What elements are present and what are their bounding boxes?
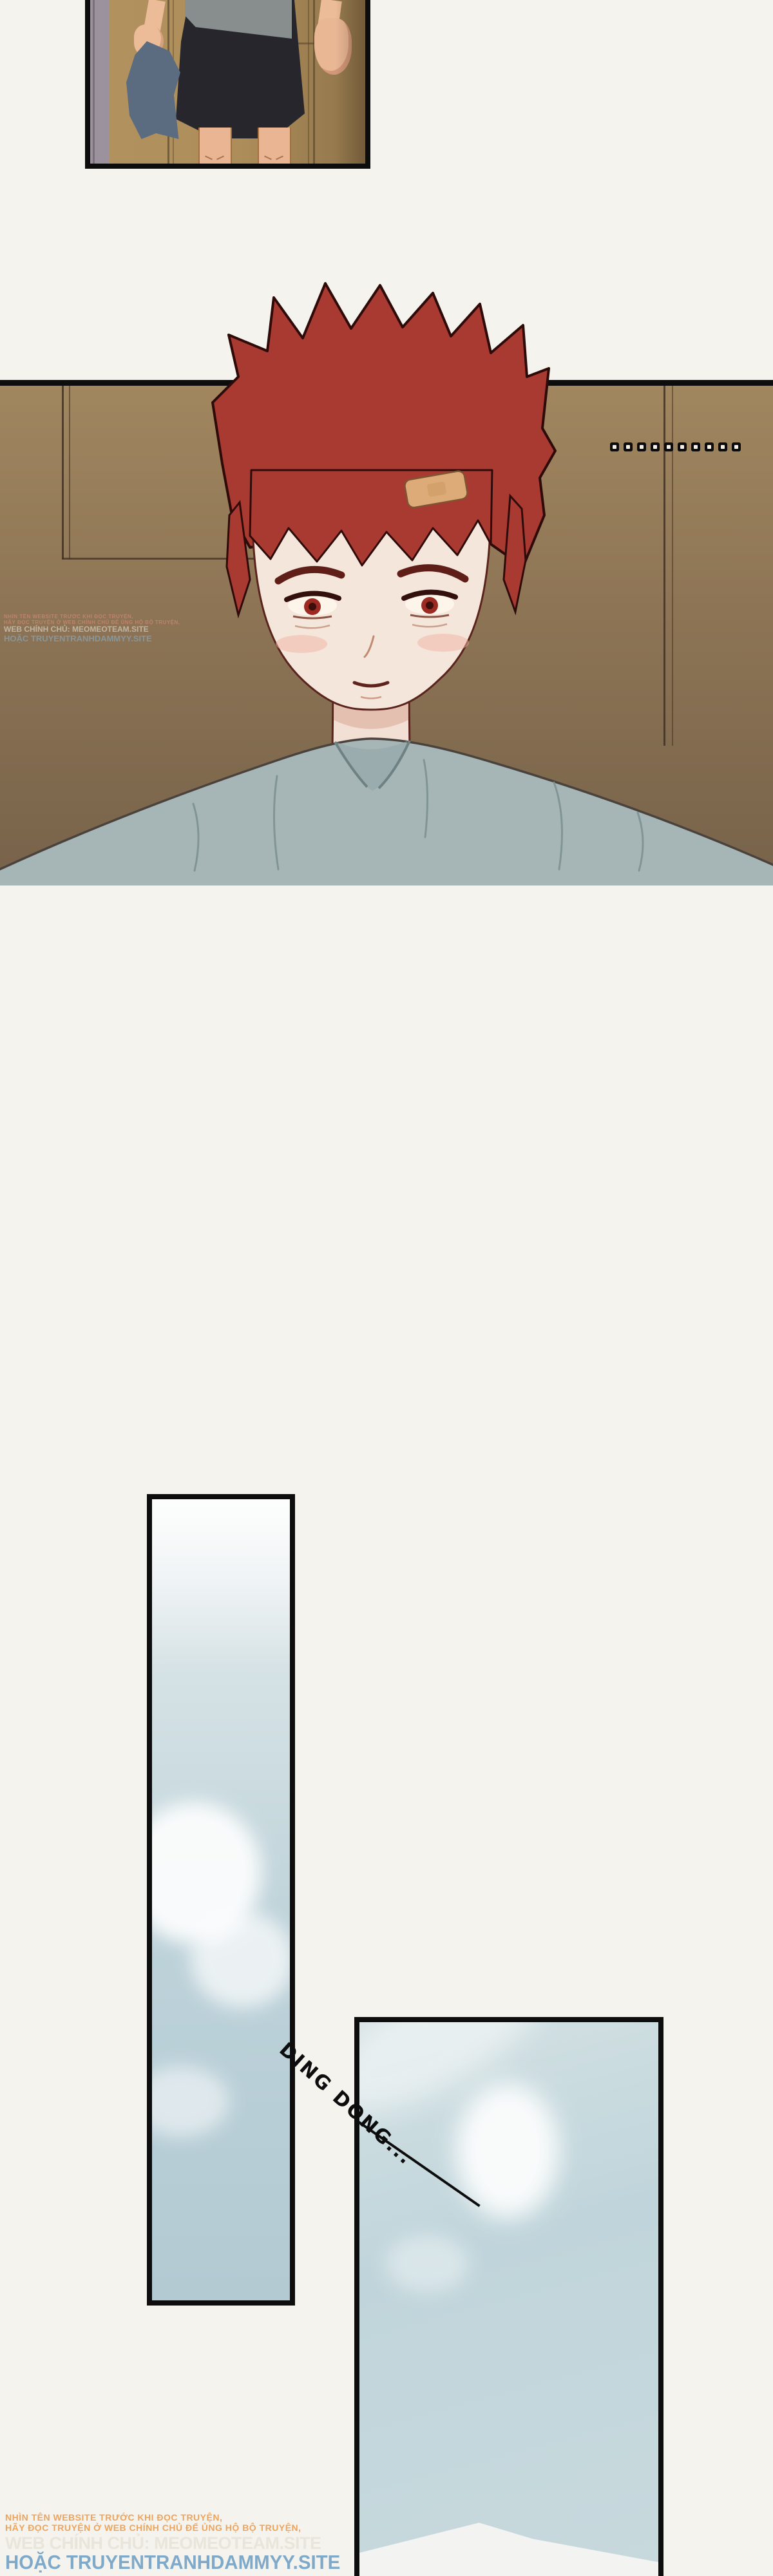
door-frame-line [663,385,665,746]
ellipsis-dot [732,442,741,451]
watermark-large-line3: WEB CHÍNH CHỦ: MEOMEOTEAM.SITE [5,2535,358,2552]
watermark-small-line4: HOẶC TRUYENTRANHDAMMYY.SITE [4,634,180,644]
ellipsis-dot [610,442,619,451]
wall-shadow [336,0,365,164]
wood-plank-line [313,0,315,164]
ellipsis-dot [637,442,646,451]
cloud [147,2066,229,2137]
ellipsis-dot [664,442,673,451]
watermark-large-line2: HÃY ĐỌC TRUYỆN Ở WEB CHÍNH CHỦ ĐỂ ỦNG HỘ… [5,2523,358,2533]
ellipsis-dot [718,442,727,451]
cloud [385,2235,469,2293]
panel-sky-tall [147,1494,295,2306]
watermark-small: NHÌN TÊN WEBSITE TRƯỚC KHI ĐỌC TRUYỆN, H… [4,614,180,644]
panel-legs-towel [85,0,370,169]
watermark-small-line1: NHÌN TÊN WEBSITE TRƯỚC KHI ĐỌC TRUYỆN, [4,614,180,620]
door-frame-line [62,558,278,560]
right-leg [258,128,291,169]
rooftop-edge [359,2518,658,2576]
left-leg [198,128,232,169]
ellipsis-dot [691,442,700,451]
ellipsis-dots [610,442,741,451]
ellipsis-dot [705,442,714,451]
watermark-large-line1: NHÌN TÊN WEBSITE TRƯỚC KHI ĐỌC TRUYỆN, [5,2513,358,2523]
cloud [191,1911,294,2008]
watermark-large: NHÌN TÊN WEBSITE TRƯỚC KHI ĐỌC TRUYỆN, H… [5,2513,358,2572]
panel-sky-bottom [354,2017,663,2576]
door-frame-line [672,385,673,746]
panel-border-top [0,380,773,386]
door-frame-line [62,385,64,559]
ellipsis-dot [678,442,687,451]
ellipsis-dot [651,442,660,451]
watermark-large-line4: HOẶC TRUYENTRANHDAMMYY.SITE [5,2552,340,2572]
panel-border-bottom [0,878,773,884]
wood-plank-line [308,0,309,164]
ellipsis-dot [624,442,633,451]
sky-highlight [152,1499,290,1667]
door-frame-line [69,385,70,559]
watermark-small-line3: WEB CHÍNH CHỦ: MEOMEOTEAM.SITE [4,625,180,634]
curtain-strip [90,0,110,164]
